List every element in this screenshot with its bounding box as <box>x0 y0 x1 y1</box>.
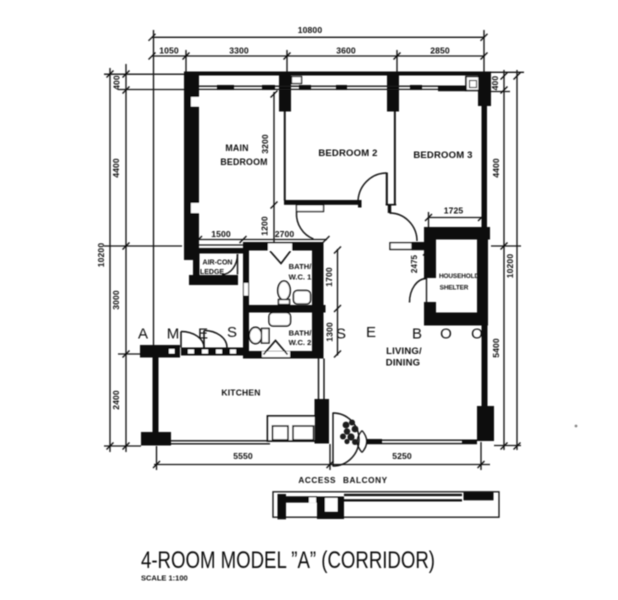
svg-text:400: 400 <box>490 76 500 91</box>
svg-text:2400: 2400 <box>111 390 121 410</box>
svg-text:AIR-CON: AIR-CON <box>203 260 233 267</box>
svg-text:2700: 2700 <box>275 229 295 239</box>
svg-text:1725: 1725 <box>444 206 464 216</box>
svg-text:HOUSEHOLD: HOUSEHOLD <box>439 273 479 280</box>
svg-text:BATH/: BATH/ <box>289 329 313 338</box>
svg-text:KITCHEN: KITCHEN <box>221 388 260 398</box>
svg-text:1050: 1050 <box>159 46 179 56</box>
svg-text:A: A <box>138 326 148 343</box>
svg-text:2475: 2475 <box>410 254 419 273</box>
svg-text:5400: 5400 <box>491 338 501 358</box>
svg-text:SHELTER: SHELTER <box>440 285 469 292</box>
svg-text:MAIN: MAIN <box>225 143 248 153</box>
svg-text:BEDROOM: BEDROOM <box>220 157 267 167</box>
svg-text:LIVING/: LIVING/ <box>386 346 422 357</box>
svg-text:1200: 1200 <box>260 216 270 236</box>
svg-text:LEDGE: LEDGE <box>200 269 224 276</box>
svg-text:400: 400 <box>112 75 122 90</box>
svg-text:BATH/: BATH/ <box>289 262 313 271</box>
svg-text:4-ROOM MODEL ”A” (CORRIDOR): 4-ROOM MODEL ”A” (CORRIDOR) <box>141 547 435 574</box>
svg-text:3300: 3300 <box>229 46 249 56</box>
svg-text:1300: 1300 <box>325 322 335 342</box>
svg-text:2850: 2850 <box>430 46 450 56</box>
svg-text:1700: 1700 <box>324 267 334 287</box>
svg-text:4400: 4400 <box>111 158 121 178</box>
svg-text:O: O <box>440 326 452 343</box>
svg-text:3600: 3600 <box>336 46 356 56</box>
svg-text:3200: 3200 <box>260 134 270 154</box>
svg-text:S: S <box>227 324 237 341</box>
svg-text:B: B <box>412 326 422 343</box>
svg-text:5550: 5550 <box>233 451 253 461</box>
svg-text:10800: 10800 <box>298 25 323 35</box>
svg-text:E: E <box>366 324 376 341</box>
svg-text:4400: 4400 <box>491 158 501 178</box>
svg-text:DINING: DINING <box>386 358 420 369</box>
svg-text:SCALE 1:100: SCALE 1:100 <box>141 574 188 583</box>
svg-text:E: E <box>198 326 208 343</box>
svg-text:BEDROOM 2: BEDROOM 2 <box>318 148 377 159</box>
svg-text:O: O <box>471 326 483 343</box>
svg-text:ACCESS BALCONY: ACCESS BALCONY <box>298 476 387 485</box>
svg-text:W.C. 1: W.C. 1 <box>289 273 313 282</box>
svg-text:BEDROOM 3: BEDROOM 3 <box>413 150 472 161</box>
svg-text:10200: 10200 <box>96 243 106 268</box>
svg-text:M: M <box>167 326 180 343</box>
svg-text:1500: 1500 <box>211 229 231 239</box>
svg-text:3000: 3000 <box>111 290 121 310</box>
svg-text:W.C. 2: W.C. 2 <box>289 338 312 347</box>
svg-text:5250: 5250 <box>392 451 412 461</box>
svg-text:10200: 10200 <box>505 254 515 279</box>
